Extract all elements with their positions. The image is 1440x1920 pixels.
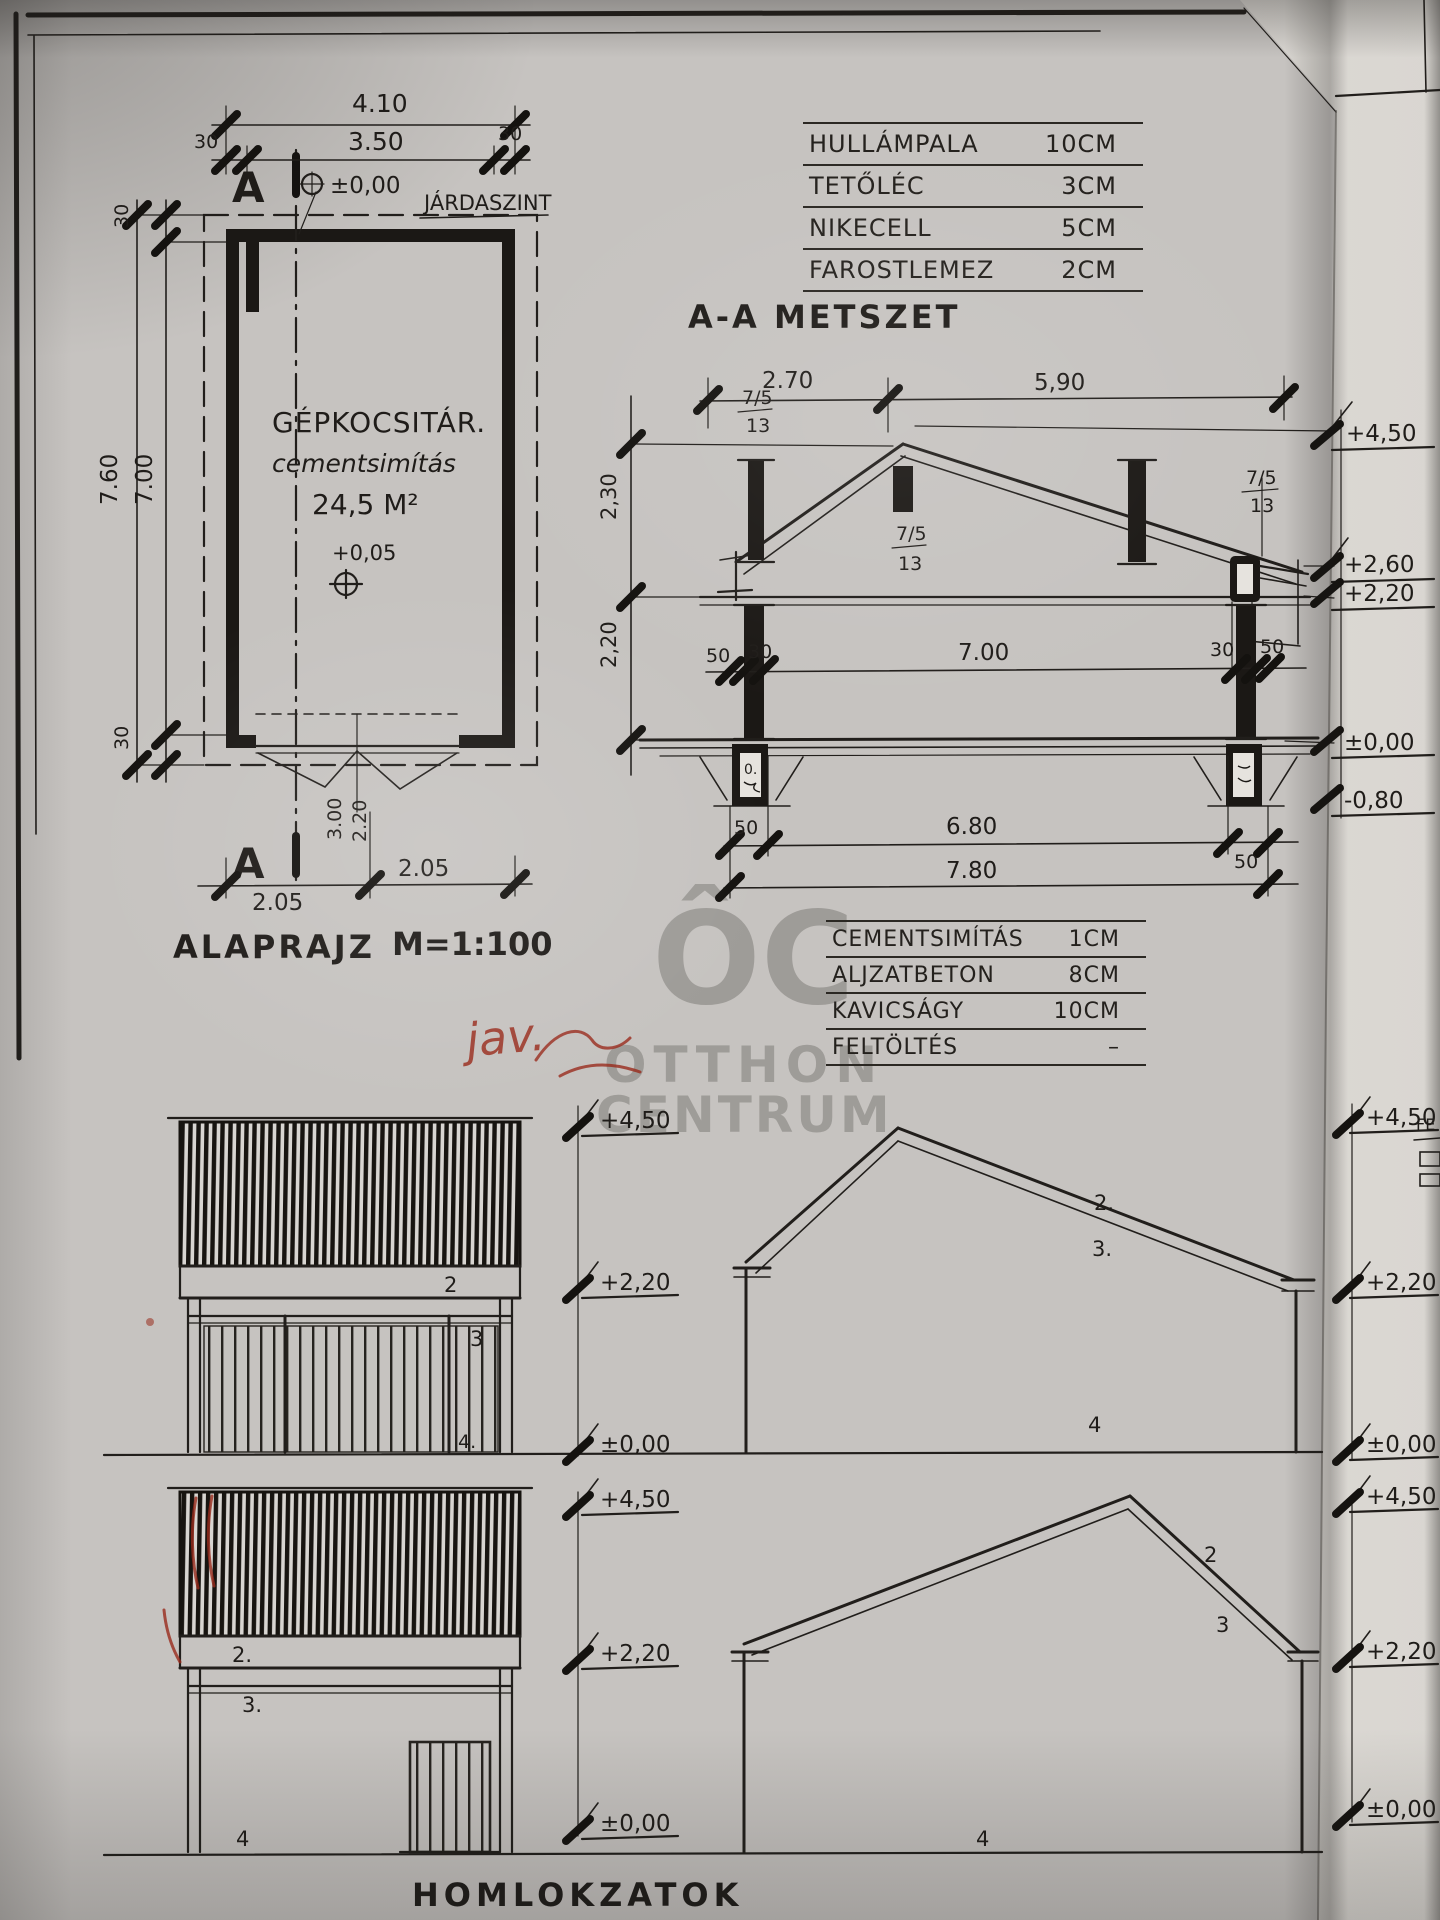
- callout-3: 3: [470, 1327, 483, 1351]
- plan-scale: M=1:100: [392, 925, 553, 963]
- edge-partial-text: FE: [1416, 1115, 1435, 1134]
- dim-205a: 2.05: [252, 890, 303, 916]
- callout-3: 3: [1216, 1613, 1229, 1637]
- callout-4: 4: [1088, 1413, 1101, 1437]
- table-row: TETŐLÉC 3CM: [803, 166, 1143, 208]
- footing-note: 0.: [744, 762, 757, 778]
- callout-2: 2.: [232, 1643, 252, 1667]
- dim-30-left: 30: [194, 131, 218, 153]
- dim-230: 2,30: [597, 473, 621, 520]
- level-label: ±0,00: [1344, 730, 1414, 756]
- dim-30a: 30: [748, 641, 772, 663]
- rafter-label: 7/5: [1246, 467, 1277, 489]
- row-label: NIKECELL: [803, 214, 932, 242]
- floor-plan: A A ±0,00 JÁRDASZINT +0,05 GÉPKOCSITÁR. …: [97, 89, 553, 966]
- level-label: +2,60: [1344, 552, 1414, 578]
- mid-level-marks: +4,50 +2,20 ±0,00 +4,50 +2,20 ±0,0: [566, 1100, 678, 1841]
- front-elevation-1: 2 3 4.: [168, 1118, 532, 1453]
- section-level-marks: +4,50 +2,60 +2,20 ±0,00 -0,80: [915, 402, 1434, 818]
- section-roof: [718, 444, 1302, 600]
- finish-label: cementsimítás: [272, 449, 456, 478]
- dim-50b: 50: [1260, 636, 1284, 658]
- ridge-purlin: [893, 466, 913, 512]
- dim-30-right: 30: [498, 123, 522, 145]
- plan-title: ALAPRAJZ: [173, 928, 375, 966]
- dim-b50b: 50: [1234, 851, 1258, 873]
- roof-layers-table: HULLÁMPALA 10CM TETŐLÉC 3CM NIKECELL 5CM…: [803, 122, 1143, 292]
- table-row: NIKECELL 5CM: [803, 208, 1143, 250]
- floor-level-marker: [330, 570, 362, 598]
- row-label: FELTÖLTÉS: [826, 1035, 958, 1060]
- table-row: CEMENTSIMÍTÁS 1CM: [826, 920, 1146, 958]
- strip-level-marks: +4,50 +2,20 ±0,00 +4,50 +2,20: [1336, 1097, 1438, 1827]
- row-value: 3CM: [1061, 172, 1143, 200]
- dim-410: 4.10: [352, 89, 408, 118]
- dim-door-h: 2.20: [349, 800, 371, 842]
- callout-2: 2: [1204, 1543, 1217, 1567]
- dim-50a: 50: [706, 645, 730, 667]
- dim-760: 7.60: [97, 454, 123, 505]
- dim-590: 5,90: [1034, 370, 1085, 396]
- row-value: 8CM: [1069, 963, 1146, 988]
- level-label: +2,20: [1366, 1270, 1436, 1296]
- row-value: 5CM: [1061, 214, 1143, 242]
- slatted-gate: [204, 1326, 498, 1452]
- rafter-label: 7/5: [896, 523, 927, 545]
- row-label: KAVICSÁGY: [826, 999, 964, 1024]
- dim-span: 7.00: [958, 640, 1009, 666]
- section-title: A-A METSZET: [688, 298, 960, 336]
- footing-left: 0.: [700, 744, 803, 806]
- table-row: ALJZATBETON 8CM: [826, 958, 1146, 994]
- table-row: FAROSTLEMEZ 2CM: [803, 250, 1143, 292]
- row-label: CEMENTSIMÍTÁS: [826, 927, 1024, 952]
- elevations-title: HOMLOKZATOK: [412, 1876, 743, 1914]
- queen-posts: [738, 460, 1156, 564]
- side-elevation-1: 2. 3. 4: [734, 1128, 1314, 1452]
- ground-line-2: [104, 1852, 1322, 1855]
- level-label: +4,50: [1346, 421, 1416, 447]
- table-row: FELTÖLTÉS –: [826, 1030, 1146, 1066]
- level-label: +4,50: [600, 1108, 670, 1134]
- dim-680: 6.80: [946, 814, 997, 840]
- callout-3: 3.: [242, 1693, 262, 1717]
- row-label: HULLÁMPALA: [803, 130, 979, 158]
- garage-door-plan: [256, 714, 459, 812]
- dim-30-top: 30: [111, 204, 133, 228]
- level-label: ±0,00: [1366, 1432, 1436, 1458]
- dim-30b: 30: [1210, 639, 1234, 661]
- level-zero-marker: [299, 172, 324, 234]
- row-value: 10CM: [1045, 130, 1143, 158]
- level-label: +4,50: [1366, 1484, 1436, 1510]
- footing-right: [1194, 744, 1297, 806]
- row-label: ALJZATBETON: [826, 963, 995, 988]
- row-label: TETŐLÉC: [803, 172, 925, 200]
- level-label: +2,20: [600, 1641, 670, 1667]
- dim-door-w: 3.00: [324, 798, 346, 840]
- red-handwritten-note: jav.: [464, 1007, 547, 1068]
- batten-label: 13: [898, 553, 922, 575]
- level-label: +2,20: [600, 1270, 670, 1296]
- rafter-label: 7/5: [742, 387, 773, 409]
- drawing-linework: A A ±0,00 JÁRDASZINT +0,05 GÉPKOCSITÁR. …: [0, 0, 1440, 1920]
- dim-b50a: 50: [734, 817, 758, 839]
- room-label: GÉPKOCSITÁR.: [272, 405, 486, 439]
- callout-4: 4: [976, 1827, 989, 1851]
- level-label: ±0,00: [600, 1811, 670, 1837]
- level-label: +2,20: [1366, 1639, 1436, 1665]
- hatched-roof: [180, 1492, 520, 1636]
- level-label: +2,20: [1344, 581, 1414, 607]
- row-value: 10CM: [1054, 999, 1146, 1024]
- level-label: ±0,00: [600, 1432, 670, 1458]
- row-value: –: [1108, 1035, 1146, 1060]
- section-dim-bottom: [719, 756, 1298, 898]
- dim-700: 7.00: [132, 454, 158, 505]
- area-label: 24,5 M²: [312, 488, 419, 521]
- section-drawing: A-A METSZET 2.70 5,90: [597, 298, 1434, 898]
- row-value: 1CM: [1069, 927, 1146, 952]
- level-zero-label: ±0,00: [330, 173, 400, 199]
- callout-4: 4.: [458, 1431, 476, 1453]
- callout-2: 2: [444, 1273, 457, 1297]
- elevations: 2 3 4.: [104, 1097, 1440, 1914]
- floor-layers-table: CEMENTSIMÍTÁS 1CM ALJZATBETON 8CM KAVICS…: [826, 920, 1146, 1066]
- hatched-roof: [180, 1122, 520, 1266]
- level-label: +4,50: [600, 1487, 670, 1513]
- table-row: KAVICSÁGY 10CM: [826, 994, 1146, 1030]
- callout-4: 4: [236, 1827, 249, 1851]
- front-elevation-2: 2. 3. 4: [168, 1488, 532, 1852]
- level-label: -0,80: [1344, 788, 1404, 814]
- floor-level-label: +0,05: [332, 541, 396, 565]
- dim-30-bottom: 30: [111, 726, 133, 750]
- table-row: HULLÁMPALA 10CM: [803, 122, 1143, 166]
- batten-label: 13: [746, 415, 770, 437]
- side-door: [410, 1742, 490, 1852]
- side-elevation-2: 2 3 4: [732, 1496, 1318, 1852]
- row-label: FAROSTLEMEZ: [803, 256, 994, 284]
- dim-350: 3.50: [348, 127, 404, 156]
- scanned-blueprint-page: ÔC OTTHON CENTRUM: [0, 0, 1440, 1920]
- sidewalk-label: JÁRDASZINT: [422, 190, 552, 215]
- row-value: 2CM: [1061, 256, 1143, 284]
- dim-780: 7.80: [946, 858, 997, 884]
- callout-2: 2.: [1094, 1191, 1114, 1215]
- dim-220s: 2,20: [597, 621, 621, 668]
- dim-205b: 2.05: [398, 856, 449, 882]
- level-label: ±0,00: [1366, 1797, 1436, 1823]
- rafter-labels: 7/5 13 7/5 13 7/5 13: [738, 387, 1278, 575]
- callout-3: 3.: [1092, 1237, 1112, 1261]
